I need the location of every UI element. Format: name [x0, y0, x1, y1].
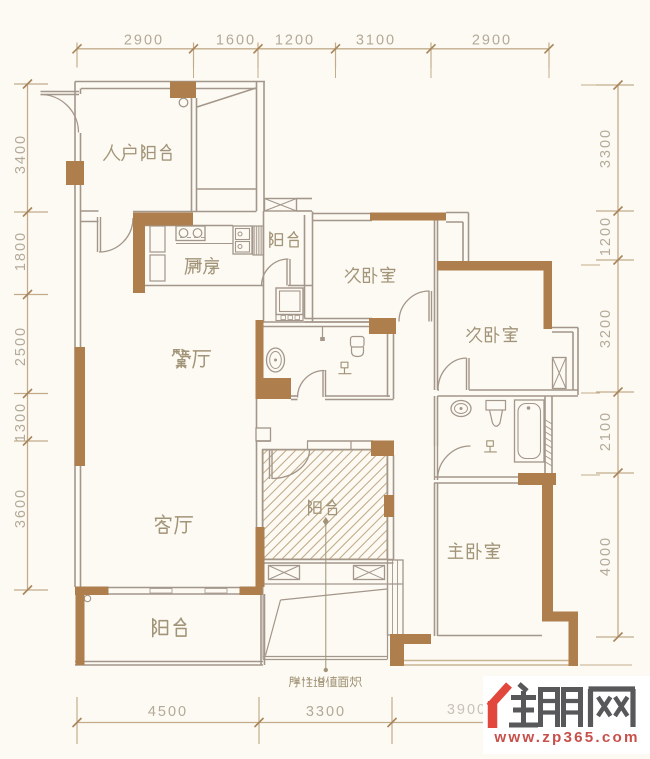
svg-text:3200: 3200 [598, 308, 614, 348]
svg-text:3900: 3900 [447, 702, 487, 718]
svg-text:3300: 3300 [598, 128, 614, 168]
svg-text:2100: 2100 [598, 411, 614, 451]
svg-text:4500: 4500 [148, 704, 188, 720]
svg-text:3300: 3300 [306, 704, 346, 720]
svg-text:www.zp365.com: www.zp365.com [493, 729, 639, 746]
svg-text:2500: 2500 [13, 326, 29, 366]
svg-text:1200: 1200 [598, 216, 614, 256]
svg-text:3100: 3100 [356, 33, 396, 49]
svg-text:3400: 3400 [13, 134, 29, 174]
svg-text:2900: 2900 [124, 33, 164, 49]
svg-text:2900: 2900 [472, 33, 512, 49]
svg-text:4000: 4000 [598, 536, 614, 576]
svg-text:3600: 3600 [13, 488, 29, 528]
svg-text:1800: 1800 [13, 231, 29, 271]
svg-text:1600: 1600 [216, 33, 256, 49]
svg-text:1300: 1300 [13, 402, 29, 442]
svg-text:1200: 1200 [275, 33, 315, 49]
